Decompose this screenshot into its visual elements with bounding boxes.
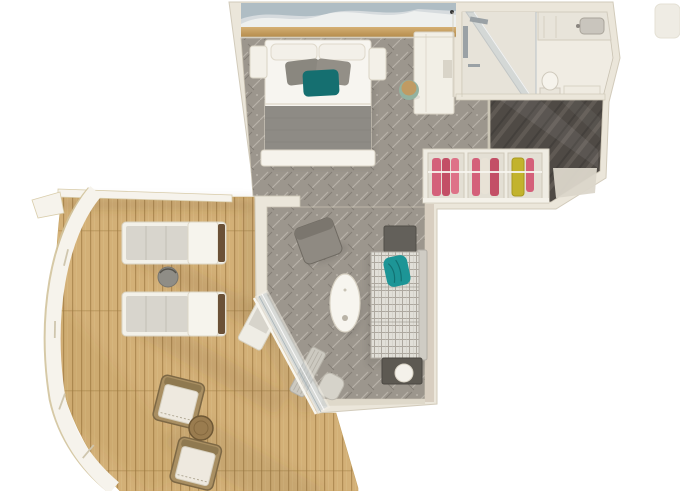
hanging-clothes xyxy=(432,158,534,196)
nightstand xyxy=(369,48,386,80)
sofa-side-table xyxy=(384,226,416,252)
sphere-lamp xyxy=(395,364,413,382)
closet-front xyxy=(423,198,549,203)
console-table xyxy=(382,358,422,384)
sun-lounger xyxy=(122,222,226,264)
nightstand xyxy=(250,46,267,78)
teal-pillow xyxy=(302,69,339,97)
faucet xyxy=(576,24,580,28)
bathroom xyxy=(456,12,613,100)
pillow xyxy=(319,44,365,60)
sink xyxy=(580,18,604,34)
suite-floorplan xyxy=(0,0,680,491)
pillow xyxy=(271,44,317,60)
deck-side-table xyxy=(158,267,178,287)
vanity-counter xyxy=(538,12,611,40)
foot-bench xyxy=(261,150,375,166)
neighbor-cabin-fragment xyxy=(655,4,680,38)
toilet xyxy=(540,72,560,96)
closet xyxy=(423,149,549,203)
bed xyxy=(261,40,375,168)
bath-south-wall xyxy=(456,94,605,100)
vanity-desk xyxy=(414,32,454,114)
foot-blanket xyxy=(265,106,371,152)
deck-wood-table xyxy=(189,416,213,440)
floorplan-image xyxy=(0,0,680,491)
sun-lounger xyxy=(122,292,226,336)
doormat xyxy=(553,168,597,198)
